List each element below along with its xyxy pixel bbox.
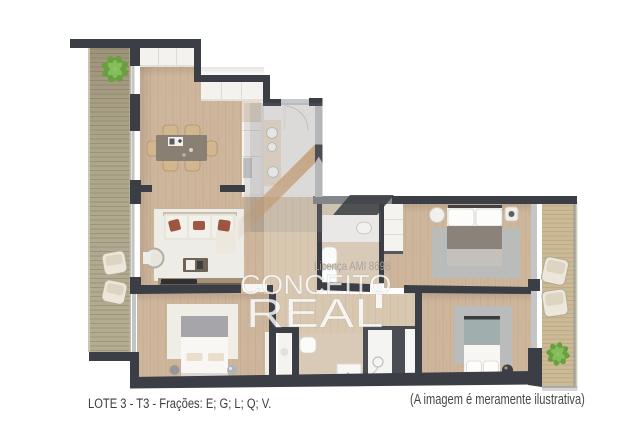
svg-text:LOTE 3 - T3 - Frações: E; G; L: LOTE 3 - T3 - Frações: E; G; L; Q; V. [88,396,271,411]
svg-text:REAL: REAL [246,290,383,336]
svg-text:(A imagem é meramente ilustrat: (A imagem é meramente ilustrativa) [410,391,585,408]
